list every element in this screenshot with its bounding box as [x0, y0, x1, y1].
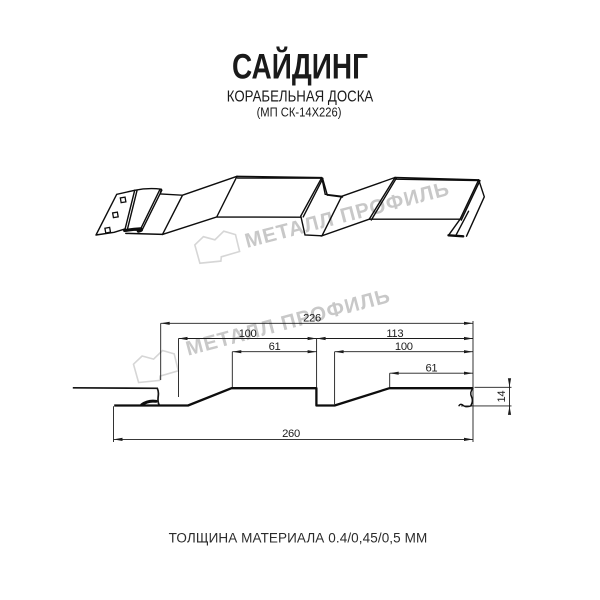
- svg-text:14: 14: [496, 391, 508, 403]
- svg-text:100: 100: [239, 328, 257, 340]
- svg-text:61: 61: [269, 341, 281, 353]
- svg-text:(МП СК-14Х226): (МП СК-14Х226): [257, 105, 342, 120]
- svg-text:100: 100: [395, 341, 413, 353]
- svg-text:ТОЛЩИНА МАТЕРИАЛА 0.4/0,45/0,5: ТОЛЩИНА МАТЕРИАЛА 0.4/0,45/0,5 ММ: [169, 531, 428, 546]
- svg-text:САЙДИНГ: САЙДИНГ: [232, 46, 368, 86]
- svg-text:260: 260: [282, 428, 300, 440]
- svg-text:КОРАБЕЛЬНАЯ ДОСКА: КОРАБЕЛЬНАЯ ДОСКА: [227, 88, 374, 105]
- svg-text:113: 113: [386, 328, 403, 340]
- svg-text:226: 226: [303, 313, 321, 325]
- svg-text:61: 61: [425, 363, 437, 375]
